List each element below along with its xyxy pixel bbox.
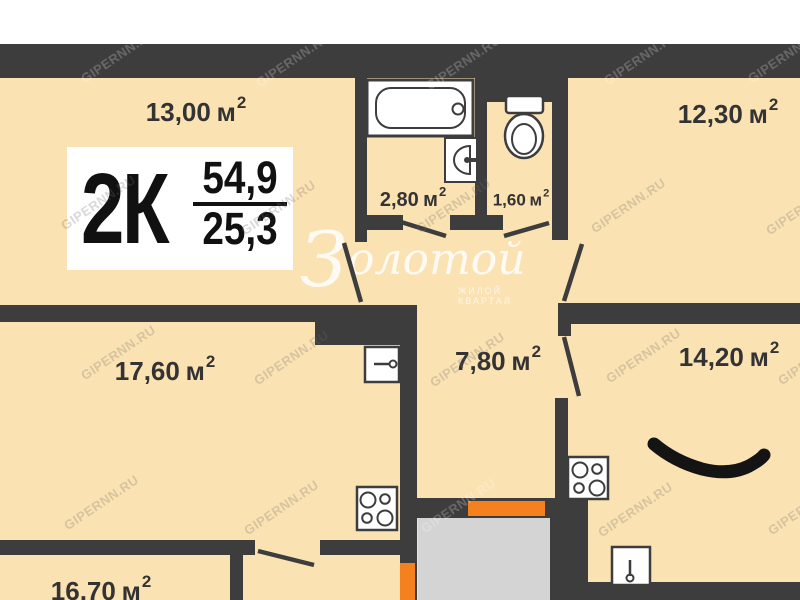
total-area: 54,9 xyxy=(198,157,282,200)
entrance-door xyxy=(468,501,545,516)
wall-segment xyxy=(555,398,568,500)
side-door xyxy=(400,563,415,600)
room-label-bathroom: 2,80м2 xyxy=(380,186,446,212)
stairwell-area xyxy=(418,518,550,600)
room-label-12-30: 12,30м2 xyxy=(678,98,778,130)
wall-segment xyxy=(588,582,800,600)
apartment-type: 2К xyxy=(81,159,167,259)
wall-segment xyxy=(550,518,588,600)
wall-segment xyxy=(355,215,403,230)
room-label-wc: 1,60м2 xyxy=(493,190,550,211)
room-label-13-00: 13,00м2 xyxy=(146,96,246,128)
wall-segment xyxy=(558,303,571,336)
living-area: 25,3 xyxy=(198,208,282,251)
room-label-14-20: 14,20м2 xyxy=(679,341,779,373)
wall-segment xyxy=(320,540,400,555)
wall-segment xyxy=(230,555,243,600)
apartment-info-badge: 2К 54,9 25,3 xyxy=(67,147,293,270)
wall-segment xyxy=(552,44,568,240)
wall-segment xyxy=(315,305,417,345)
room-label-16-70: 16,70м2 xyxy=(51,575,151,600)
room-label-hallway: 7,80м2 xyxy=(455,345,541,377)
room-label-17-60: 17,60м2 xyxy=(115,355,215,387)
wall-segment xyxy=(0,305,315,322)
wall-segment xyxy=(0,44,800,78)
wall-segment xyxy=(475,78,487,230)
wall-segment xyxy=(0,540,255,555)
wall-segment xyxy=(487,215,503,230)
wall-segment xyxy=(400,345,417,600)
floorplan-image: З олотой ЖИЛОЙ КВАРТАЛ xyxy=(0,0,800,600)
wall-segment xyxy=(558,303,800,324)
area-fraction: 54,9 25,3 xyxy=(191,157,289,251)
wall-segment xyxy=(450,215,487,230)
